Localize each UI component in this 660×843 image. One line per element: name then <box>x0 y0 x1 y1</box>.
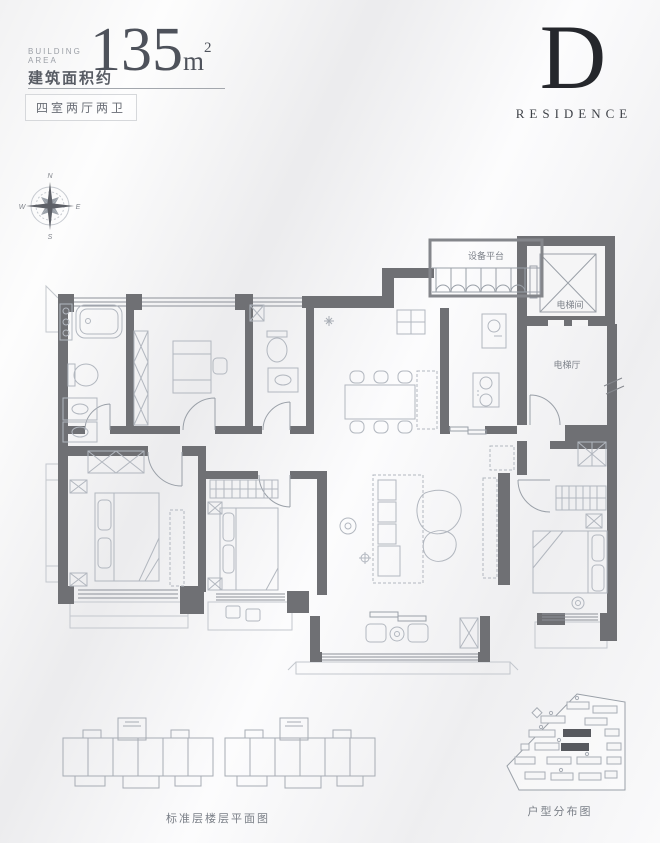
building-area-label: BUILDING AREA <box>28 47 82 65</box>
building-area-line2: AREA <box>28 56 82 65</box>
distribution-map <box>487 682 647 802</box>
standard-floor-drawing <box>55 700 385 800</box>
logo-word: RESIDENCE <box>512 106 636 122</box>
label-elevator-room: 电梯间 <box>556 299 583 310</box>
label-elevator-hall: 电梯厅 <box>553 359 580 370</box>
distribution-caption: 户型分布图 <box>475 803 645 819</box>
area-unit: m <box>183 46 204 76</box>
area-label-cn: 建筑面积约 <box>28 67 113 88</box>
compass-n: N <box>47 173 53 180</box>
compass-e: E <box>76 204 81 211</box>
standard-floor-caption: 标准层楼层平面图 <box>118 810 318 826</box>
layout-tag: 四室两厅两卫 <box>25 94 137 121</box>
compass-w: W <box>19 204 27 211</box>
floorplan-poster: BUILDING AREA 135m2 建筑面积约 四室两厅两卫 D RESID… <box>0 0 660 843</box>
label-equipment-platform: 设备平台 <box>468 250 504 261</box>
mini-strip-lines <box>63 718 375 788</box>
main-floor-plan: 设备平台 电梯间 电梯厅 <box>30 228 645 698</box>
area-exponent: 2 <box>204 40 212 56</box>
elevator-room <box>527 246 605 326</box>
header-divider <box>28 88 225 89</box>
building-area-line1: BUILDING <box>28 47 82 56</box>
logo-letter: D <box>538 8 608 106</box>
compass-star <box>26 182 74 230</box>
